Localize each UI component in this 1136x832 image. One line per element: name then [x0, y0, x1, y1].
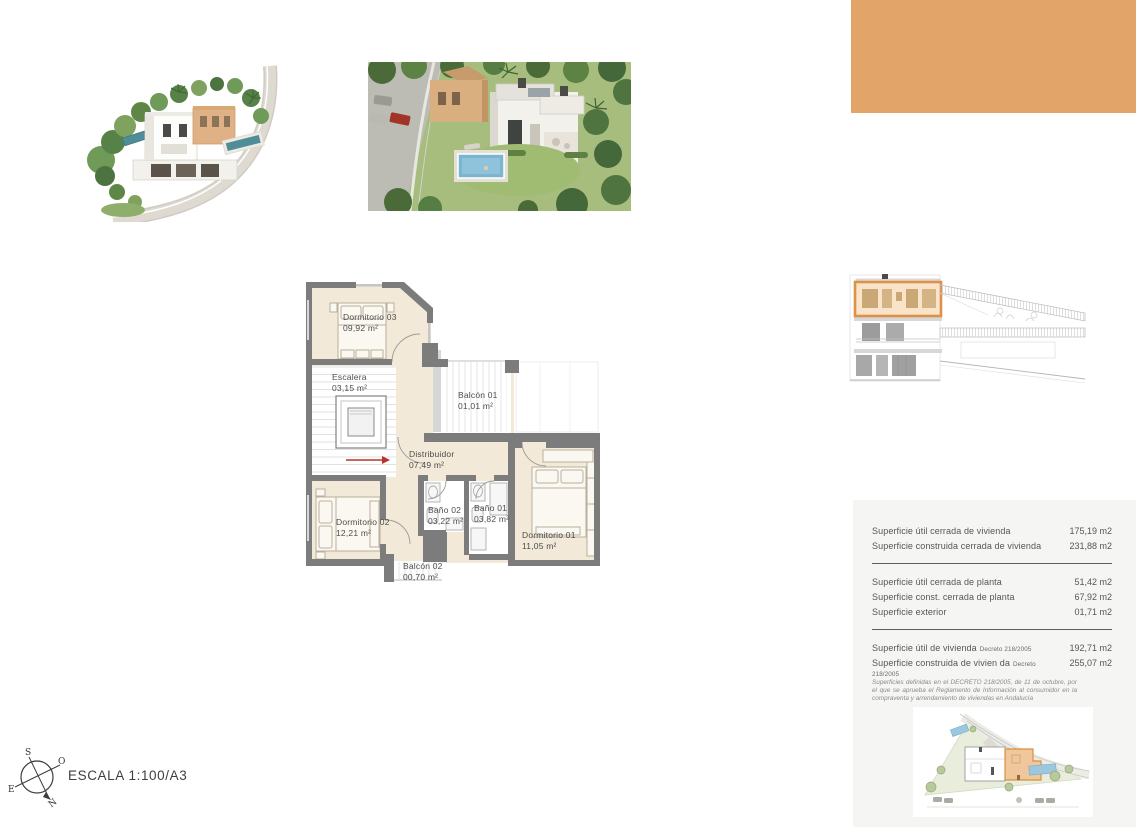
render-aerial-overview [83, 64, 283, 222]
row-value: 255,07 m2 [1069, 658, 1112, 668]
floor-plan: Dormitorio 0309,92 m² Escalera03,15 m² B… [300, 270, 620, 590]
compass-icon: S O E N [8, 746, 70, 808]
table-row: Superficie útil de viviendaDecreto 218/2… [872, 643, 1112, 653]
table-row: Superficie útil cerrada de vivienda 175,… [872, 526, 1112, 536]
row-value: 175,19 m2 [1069, 526, 1112, 536]
room-label-dormitorio-02: Dormitorio 0212,21 m² [336, 517, 390, 539]
room-label-bano-02: Baño 0203,22 m² [428, 505, 463, 527]
row-label: Superficie útil cerrada de vivienda [872, 526, 1011, 536]
row-value: 51,42 m2 [1074, 577, 1112, 587]
compass-west-label: O [58, 757, 65, 767]
render-villa-closeup [368, 62, 631, 211]
room-label-distribuidor: Distribuidor07,49 m² [409, 449, 454, 471]
site-plan-art [913, 707, 1093, 817]
table-row: Superficie exterior 01,71 m2 [872, 607, 1112, 617]
room-label-bano-01: Baño 0103,82 m² [474, 503, 509, 525]
site-plan [913, 707, 1093, 817]
table-row: Superficie construida de vivien daDecret… [872, 658, 1112, 678]
row-label: Superficie construida cerrada de viviend… [872, 541, 1041, 551]
plan-sheet: Dormitorio 0309,92 m² Escalera03,15 m² B… [0, 0, 1136, 832]
room-label-escalera: Escalera03,15 m² [332, 372, 367, 394]
row-label: Superficie exterior [872, 607, 946, 617]
row-value: 231,88 m2 [1069, 541, 1112, 551]
street-cars [933, 797, 1055, 803]
surface-panel: Superficie útil cerrada de vivienda 175,… [853, 500, 1136, 827]
render-aerial-overview-art [83, 64, 283, 222]
surface-table: Superficie útil cerrada de vivienda 175,… [872, 526, 1112, 703]
table-divider [872, 629, 1112, 630]
table-row: Superficie útil cerrada de planta 51,42 … [872, 577, 1112, 587]
compass-east-label: E [8, 785, 15, 795]
highlighted-unit [1005, 749, 1041, 780]
room-label-dormitorio-03: Dormitorio 0309,92 m² [343, 312, 397, 334]
row-label: Superficie útil de vivienda [872, 643, 977, 653]
render-villa-closeup-art [368, 62, 631, 211]
white-house [145, 112, 197, 160]
table-row: Superficie construida cerrada de viviend… [872, 541, 1112, 551]
orange-house [193, 106, 235, 144]
table-footnote: Superficies definidas en el DECRETO 218/… [872, 679, 1077, 703]
row-label: Superficie construida de vivien da [872, 658, 1010, 668]
table-divider [872, 563, 1112, 564]
scale-label: ESCALA 1:100/A3 [68, 768, 187, 783]
room-label-dormitorio-01: Dormitorio 0111,05 m² [522, 530, 576, 552]
accent-block [851, 0, 1136, 113]
row-label: Superficie útil cerrada de planta [872, 577, 1002, 587]
row-value: 01,71 m2 [1074, 607, 1112, 617]
compass-south-label: S [25, 748, 31, 758]
elevation-drawing [848, 265, 1090, 387]
table-row: Superficie const. cerrada de planta 67,9… [872, 592, 1112, 602]
highlighted-storey [855, 282, 941, 316]
room-label-balcon-02: Balcón 0200,70 m² [403, 561, 443, 583]
row-value: 67,92 m2 [1074, 592, 1112, 602]
row-label: Superficie const. cerrada de planta [872, 592, 1015, 602]
elevation-art [848, 265, 1090, 387]
room-label-balcon-01: Balcón 0101,01 m² [458, 390, 498, 412]
building-footprint [965, 747, 1005, 781]
row-note: Decreto 218/2005 [980, 646, 1032, 653]
row-value: 192,71 m2 [1069, 643, 1112, 653]
terrace-wall [133, 160, 237, 180]
